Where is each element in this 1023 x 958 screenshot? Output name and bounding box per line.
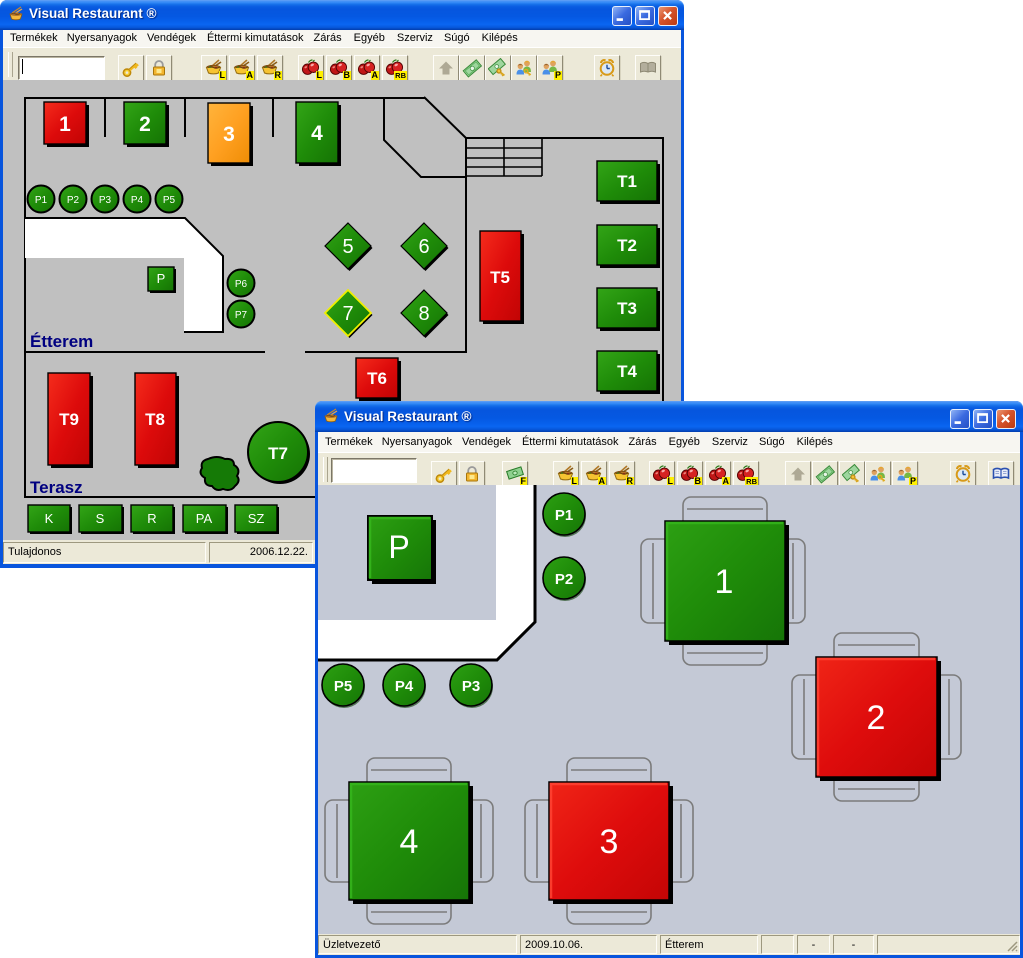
svg-text:P2: P2 — [67, 195, 80, 206]
svg-text:P6: P6 — [235, 279, 248, 290]
svg-text:PA: PA — [196, 511, 213, 526]
svg-text:4: 4 — [311, 122, 323, 145]
svg-text:2: 2 — [139, 113, 151, 136]
svg-text:P3: P3 — [462, 678, 480, 695]
svg-text:3: 3 — [223, 123, 235, 146]
svg-text:K: K — [45, 511, 54, 526]
svg-text:P5: P5 — [163, 195, 176, 206]
svg-text:7: 7 — [342, 303, 353, 325]
svg-text:SZ: SZ — [248, 511, 265, 526]
svg-text:1: 1 — [59, 113, 71, 136]
svg-text:P7: P7 — [235, 310, 248, 321]
svg-text:P5: P5 — [334, 678, 352, 695]
svg-text:T2: T2 — [617, 236, 637, 255]
svg-text:T9: T9 — [59, 410, 79, 429]
svg-text:6: 6 — [418, 236, 429, 258]
svg-text:P2: P2 — [555, 571, 573, 588]
svg-text:3: 3 — [600, 823, 619, 861]
svg-text:S: S — [96, 511, 105, 526]
svg-text:P: P — [388, 529, 409, 565]
svg-text:8: 8 — [418, 303, 429, 325]
svg-text:R: R — [147, 511, 156, 526]
svg-text:2: 2 — [867, 699, 886, 737]
svg-text:T6: T6 — [367, 369, 387, 388]
svg-text:1: 1 — [715, 563, 734, 601]
svg-text:Étterem: Étterem — [30, 332, 93, 351]
svg-text:Terasz: Terasz — [30, 478, 83, 497]
svg-text:P: P — [157, 271, 166, 286]
svg-text:5: 5 — [342, 236, 353, 258]
svg-text:T1: T1 — [617, 172, 637, 191]
svg-text:P1: P1 — [555, 507, 573, 524]
svg-text:4: 4 — [400, 823, 419, 861]
svg-text:P4: P4 — [395, 678, 414, 695]
svg-text:T7: T7 — [268, 444, 288, 463]
svg-text:T4: T4 — [617, 362, 637, 381]
svg-text:T3: T3 — [617, 299, 637, 318]
svg-text:T5: T5 — [490, 268, 510, 287]
svg-text:P4: P4 — [131, 195, 144, 206]
svg-text:T8: T8 — [145, 410, 165, 429]
svg-text:P3: P3 — [99, 195, 112, 206]
svg-text:P1: P1 — [35, 195, 48, 206]
